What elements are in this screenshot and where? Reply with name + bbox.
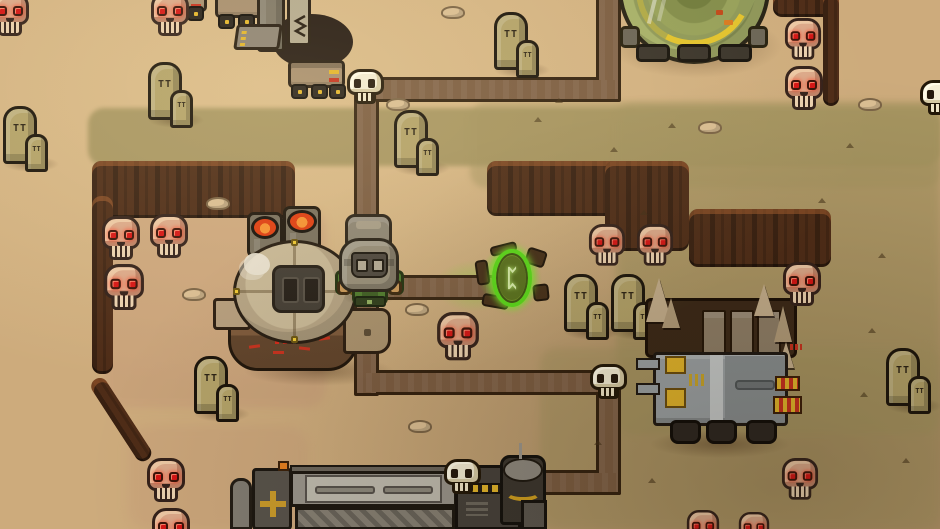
skull-eye: [803, 471, 813, 481]
skull-eye: [0, 6, 7, 16]
truck-prong: [636, 358, 660, 370]
gravestone-small: TT: [908, 376, 931, 414]
skull-jaw: [154, 488, 178, 502]
skull-eye: [692, 522, 701, 529]
gravestone-mark: TT: [889, 365, 917, 376]
marker-eye: [465, 469, 472, 478]
gravestone-mark: TT: [497, 29, 525, 40]
gravestone-mark: TT: [397, 127, 425, 138]
skull-jaw: [789, 487, 812, 500]
marker-eye: [927, 90, 934, 99]
gravestone-pair: TT TT: [494, 12, 554, 80]
tank-yellow-band: [505, 485, 541, 501]
skull-jaw: [792, 96, 816, 110]
rock-pebble: [408, 420, 432, 433]
machine-chimney: [287, 0, 311, 46]
dome-speck: [716, 10, 723, 15]
machine-platform: [233, 24, 283, 50]
marker-cranium: [347, 69, 384, 95]
gravestone-mark: TT: [519, 51, 536, 59]
furnace-hatch: [272, 265, 325, 313]
skull-eye: [706, 522, 715, 529]
gravestone-mark: TT: [28, 145, 45, 153]
red-eyed-skull: [784, 18, 822, 63]
red-tally-mark: [273, 351, 284, 354]
skull-jaw: [790, 292, 814, 306]
cargo-plank: [702, 310, 726, 354]
red-eyed-skull: [151, 508, 191, 529]
marker-jaw: [355, 93, 376, 104]
red-eyed-skull: [588, 224, 626, 269]
disc-rivet: [291, 239, 298, 246]
skull-path-marker: [347, 69, 384, 105]
armor-spike: [754, 284, 774, 316]
visor-lens: [356, 259, 368, 272]
red-eyed-skull: [636, 224, 674, 269]
hatch-slot: [282, 277, 299, 303]
red-eyed-skull: [784, 66, 824, 113]
truck-wheel: [329, 84, 346, 99]
gravestone-pair: TT TT: [394, 110, 454, 178]
tank-antenna: [519, 443, 522, 459]
skull-eye: [108, 230, 118, 240]
cab-stripe: [710, 355, 723, 423]
red-eyed-skull: [150, 0, 190, 39]
truck-prong: [636, 383, 660, 395]
red-eyed-skull: [146, 458, 186, 505]
tank-cap: [503, 458, 543, 482]
marker-jaw: [928, 104, 940, 115]
yellow-vents: [689, 374, 705, 386]
skull-eye: [643, 237, 653, 247]
skull-eye: [127, 279, 137, 290]
skull-eye: [805, 276, 815, 286]
path-walkway[interactable]: [363, 80, 618, 99]
bench-slot: [383, 486, 433, 494]
gravestone-mark: TT: [589, 313, 606, 321]
red-eyed-skull: [103, 264, 145, 313]
visor-lens: [372, 259, 384, 272]
rune-glyph: ᛈ: [505, 264, 519, 292]
gravestone-small: TT: [216, 384, 239, 422]
skull-jaw: [158, 22, 182, 36]
marker-eye: [451, 469, 458, 478]
marker-cranium: [444, 459, 481, 485]
armor-spike: [774, 306, 792, 342]
skull-path-marker: [590, 364, 627, 400]
skull-eye: [124, 230, 134, 240]
dome-speck: [724, 20, 733, 25]
marker-eye: [354, 79, 361, 88]
skull-eye: [174, 522, 184, 529]
orange-marker: [278, 461, 289, 471]
dome-tread: [677, 44, 711, 62]
game-viewport[interactable]: ᛈ TT TT TT TT: [0, 0, 940, 529]
skull-eye: [610, 237, 620, 247]
cliff-wall: [689, 209, 831, 267]
gravestone-small: TT: [586, 302, 609, 340]
gravestone-mark: TT: [6, 123, 34, 134]
red-eyed-skull: [149, 214, 189, 261]
skull-jaw: [0, 22, 22, 36]
gravestone-pair: TT TT: [3, 106, 63, 174]
cliff-wall: [823, 0, 839, 106]
cab-vent-slot: [735, 380, 775, 390]
skull-eye: [461, 327, 472, 338]
truck-wheel: [291, 84, 308, 99]
chimney-zigzag-icon: [293, 15, 309, 37]
dome-structure[interactable]: [618, 0, 770, 64]
path-walkway[interactable]: [366, 373, 618, 392]
skull-eye: [807, 80, 817, 90]
marker-eye: [368, 79, 375, 88]
character-belt: [354, 296, 386, 307]
truck-wheel: [218, 14, 235, 29]
skull-eye: [13, 6, 23, 16]
hazard-stripe-block: [775, 376, 800, 391]
marker-eye: [597, 374, 604, 383]
cargo-plank: [730, 310, 754, 354]
gravestone-pair: TT TT: [886, 348, 940, 416]
skull-eye: [157, 6, 167, 16]
skull-eye: [173, 6, 183, 16]
gravestone-mark: TT: [567, 291, 595, 302]
yellow-cross-icon: [260, 491, 286, 517]
red-eyed-skull: [738, 512, 770, 529]
disc-rivet: [233, 288, 240, 295]
hatched-floor-panel: [295, 507, 455, 529]
bench-slot: [315, 486, 375, 494]
truck-wheel: [670, 420, 701, 444]
dome-tread: [718, 44, 752, 62]
gravestone-small: TT: [516, 40, 539, 78]
skull-eye: [172, 228, 182, 238]
mining-machine[interactable]: [185, 0, 360, 108]
truck-wheel: [706, 420, 737, 444]
character-visor: [351, 252, 388, 278]
armor-spike: [662, 298, 680, 328]
rock-pebble: [858, 98, 882, 111]
gravestone-mark: TT: [419, 149, 436, 157]
workbench-surface: [305, 475, 442, 503]
skull-path-marker: [444, 459, 481, 495]
rock-pebble: [405, 303, 429, 316]
tank-step: [521, 500, 547, 529]
red-marks: [790, 344, 802, 350]
skull-eye: [169, 472, 179, 482]
skull-eye: [444, 327, 455, 338]
marker-jaw: [452, 483, 473, 494]
skull-eye: [756, 523, 764, 529]
red-eyed-skull: [101, 216, 141, 263]
skull-eye: [153, 472, 163, 482]
hatch-slot: [303, 277, 320, 303]
skull-eye: [156, 228, 166, 238]
player-character[interactable]: [331, 212, 406, 312]
red-eyed-skull: [0, 0, 30, 39]
red-eyed-skull: [781, 458, 819, 503]
green-portal[interactable]: ᛈ: [468, 236, 552, 320]
truck-wheel: [746, 420, 777, 444]
red-eyed-skull: [686, 510, 720, 529]
rock-pebble: [182, 288, 206, 301]
red-eyed-skull: [782, 262, 822, 309]
skull-eye: [788, 471, 798, 481]
portal-rock: [532, 283, 550, 302]
disc-rivet: [291, 336, 298, 343]
armored-truck[interactable]: [638, 292, 810, 452]
rock-pebble: [698, 121, 722, 134]
workshop-building[interactable]: [228, 455, 558, 529]
skull-eye: [595, 237, 605, 247]
marker-eye: [611, 374, 618, 383]
skull-eye: [158, 522, 168, 529]
rock-pebble: [441, 6, 465, 19]
skull-jaw: [157, 244, 181, 258]
dome-tread: [636, 44, 670, 62]
gravestone-mark: TT: [219, 395, 236, 403]
gravestone-mark: TT: [151, 79, 179, 90]
portal-core: ᛈ: [498, 256, 526, 300]
skull-eye: [110, 279, 121, 290]
skull-path-marker: [920, 80, 940, 116]
dome-side-pod: [748, 26, 768, 48]
skull-eye: [658, 237, 668, 247]
skull-eye: [789, 276, 799, 286]
gravestone-mark: TT: [911, 387, 928, 395]
yellow-hatch: [665, 356, 686, 374]
skull-eye: [744, 523, 752, 529]
marker-cranium: [590, 364, 627, 390]
skull-eye: [791, 31, 801, 41]
hazard-stripe-block: [773, 396, 802, 414]
skull-jaw: [792, 47, 815, 60]
skull-jaw: [111, 296, 136, 311]
skull-eye: [806, 31, 816, 41]
marker-jaw: [598, 388, 619, 399]
skull-jaw: [109, 246, 133, 260]
grey-crate: [230, 478, 252, 529]
yellow-hatch: [665, 388, 686, 408]
truck-wheel: [311, 84, 328, 99]
skull-jaw: [644, 253, 667, 266]
gravestone-small: TT: [416, 138, 439, 176]
skull-eye: [791, 80, 801, 90]
skull-jaw: [445, 345, 471, 360]
steam-puff: [244, 253, 270, 275]
gravestone-small: TT: [25, 134, 48, 172]
skull-jaw: [596, 253, 619, 266]
